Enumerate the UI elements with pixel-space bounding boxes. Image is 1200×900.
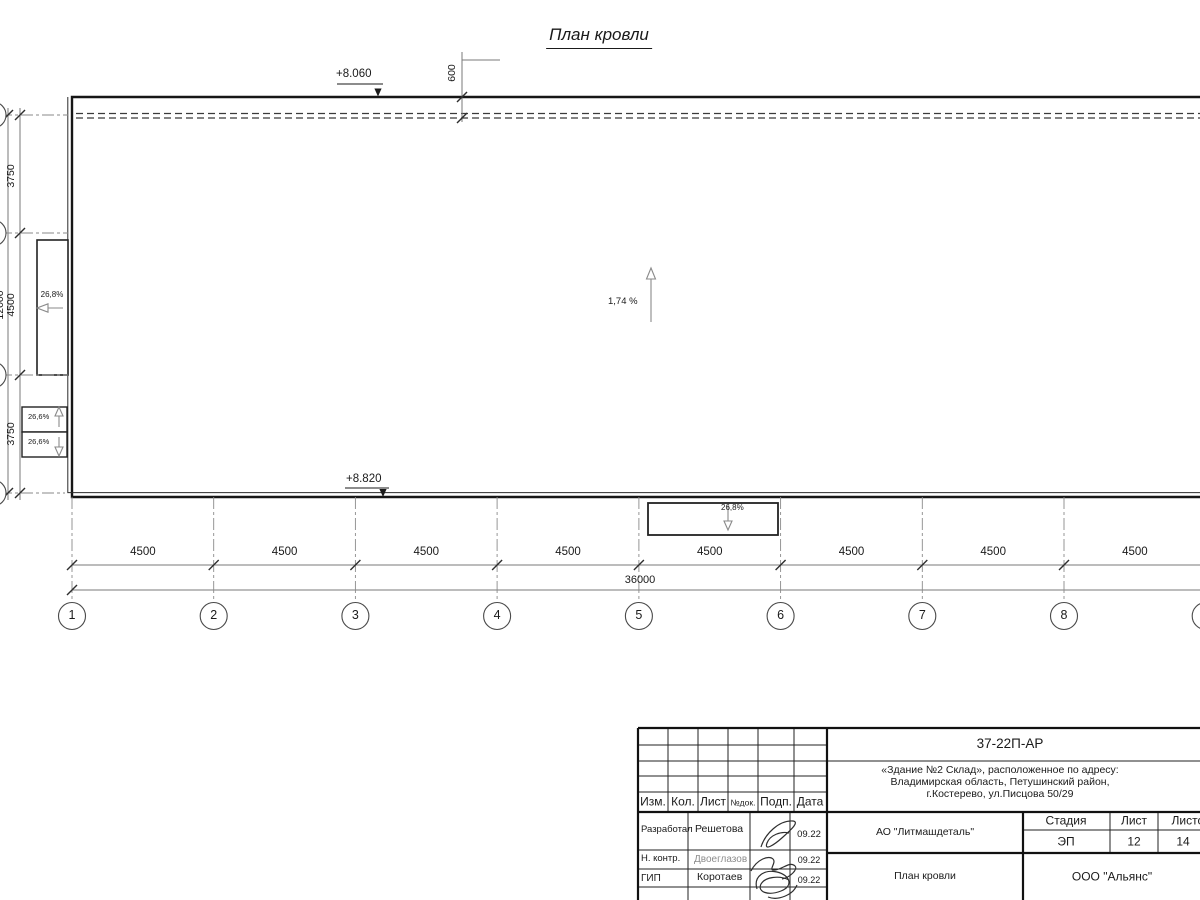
main-slope-label: 1,74 %: [608, 297, 638, 307]
dim-segment-label: 4500: [697, 546, 723, 559]
dim-segment-label: 4500: [414, 546, 440, 559]
parapet-offset-dim: 600: [447, 64, 459, 82]
axis-number: 8: [1061, 609, 1068, 623]
titleblock-company: АО "Литмашдеталь": [876, 827, 974, 839]
axis-number: 3: [352, 609, 359, 623]
axis-number: 2: [210, 609, 217, 623]
page-title: План кровли: [546, 26, 652, 49]
titleblock-row-name: Двоеглазов: [694, 854, 747, 865]
axis-number: 1: [69, 609, 76, 623]
titleblock-sheet-value: 12: [1127, 835, 1140, 848]
titleblock-doc-number: 37-22П-АР: [977, 737, 1044, 752]
dim-ticks: [3, 92, 1069, 595]
elevation-label-top: +8.060: [336, 68, 372, 81]
titleblock-row-role: Н. контр.: [641, 854, 680, 864]
titleblock-org: ООО "Альянс": [1072, 870, 1152, 883]
titleblock-row-date: 09.22: [797, 830, 821, 840]
titleblock-row-date: 09.22: [798, 876, 821, 886]
titleblock-row-name: Коротаев: [697, 872, 742, 884]
titleblock-stage-value: ЭП: [1057, 835, 1074, 848]
dim-segment-label: 4500: [130, 546, 156, 559]
dim-left-top: 3750: [6, 164, 18, 187]
dim-segment-label: 4500: [980, 546, 1006, 559]
titleblock-sheets-label: Листов: [1172, 814, 1200, 827]
dim-segment-label: 4500: [839, 546, 865, 559]
titleblock-sheet-label: Лист: [1121, 814, 1147, 827]
dim-segment-label: 4500: [1122, 546, 1148, 559]
parapet-dashed-lines: [76, 114, 1200, 119]
axis-number: 4: [494, 609, 501, 623]
titleblock-stage-label: Стадия: [1046, 814, 1087, 827]
titleblock-sheet-name: План кровли: [894, 871, 956, 883]
axis-number: 7: [919, 609, 926, 623]
drawing-sheet: План кровли +8.060 600 +8.820 1,74 % 26,…: [0, 0, 1200, 900]
titleblock-row-role: ГИП: [641, 873, 661, 884]
titleblock-col-ndok: №док.: [731, 798, 756, 807]
titleblock-col-podp: Подп.: [760, 795, 792, 808]
axis-number: 5: [635, 609, 642, 623]
dimension-lines: [8, 52, 1200, 590]
axis-circles: [0, 102, 1200, 630]
titleblock-sheets-value: 14: [1176, 835, 1189, 848]
titleblock-row-name: Решетова: [695, 824, 743, 836]
dim-segment-label: 4500: [555, 546, 581, 559]
titleblock-col-list: Лист: [700, 795, 726, 808]
dim-left-bottom: 3750: [6, 422, 18, 445]
left-box-top-slope-label: 26,6%: [28, 413, 49, 421]
titleblock-address-line: г.Костерево, ул.Писцова 50/29: [927, 789, 1074, 801]
titleblock-col-izm: Изм.: [640, 795, 666, 808]
bottom-canopy: [648, 503, 778, 535]
dim-left-overall: 12000: [0, 290, 7, 319]
elevation-leaders: [337, 84, 389, 497]
titleblock-address-line: «Здание №2 Склад», расположенное по адре…: [881, 765, 1118, 777]
bottom-canopy-slope-label: 26,8%: [721, 504, 744, 513]
titleblock-row-date: 09.22: [798, 856, 821, 866]
axis-number: 6: [777, 609, 784, 623]
titleblock-row-role: Разработал: [641, 825, 693, 835]
axis-lines: [0, 115, 1064, 602]
titleblock-col-data: Дата: [797, 795, 824, 808]
left-canopy-slope-label: 26,8%: [41, 291, 64, 300]
left-box-bottom-slope-label: 26,6%: [28, 438, 49, 446]
elevation-label-bottom: +8.820: [346, 473, 382, 486]
dim-segment-label: 4500: [272, 546, 298, 559]
dim-left-middle: 4500: [6, 293, 18, 316]
titleblock-col-kol: Кол.: [671, 795, 695, 808]
signature-nkontr: [751, 858, 796, 880]
titleblock-address-line: Владимирская область, Петушинский район,: [890, 777, 1109, 789]
dim-overall-label: 36000: [625, 574, 656, 586]
